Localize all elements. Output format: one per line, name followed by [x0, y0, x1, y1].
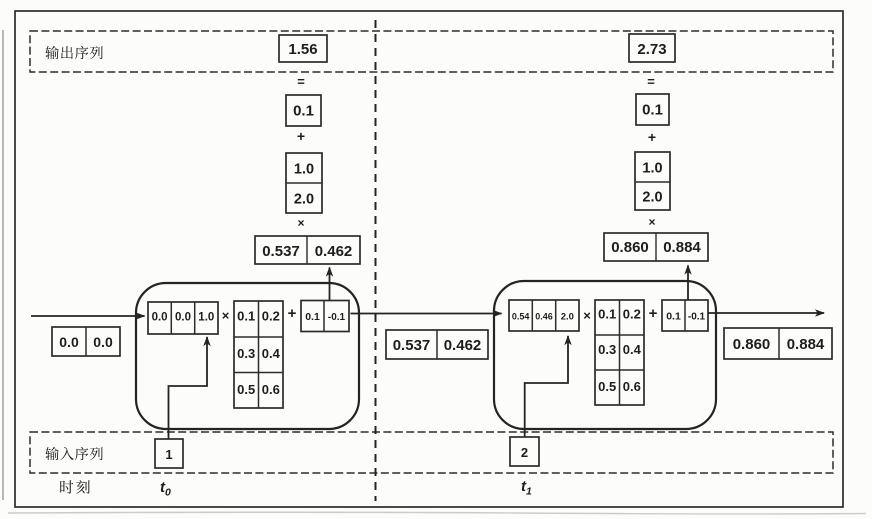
svg-text:0.2: 0.2: [262, 309, 280, 324]
svg-text:×: ×: [583, 308, 591, 323]
svg-text:0.0: 0.0: [59, 334, 79, 350]
svg-text:0.6: 0.6: [623, 379, 641, 394]
svg-text:×: ×: [222, 308, 230, 323]
svg-text:0.1: 0.1: [237, 309, 255, 324]
svg-text:0.3: 0.3: [237, 346, 255, 361]
svg-text:0.1: 0.1: [666, 311, 681, 323]
svg-text:0.1: 0.1: [642, 102, 663, 119]
svg-text:1.0: 1.0: [642, 161, 662, 177]
svg-text:1.0: 1.0: [294, 162, 314, 178]
svg-text:0.4: 0.4: [262, 346, 281, 361]
svg-text:0.1: 0.1: [305, 311, 320, 323]
svg-text:=: =: [647, 74, 655, 89]
svg-text:0.5: 0.5: [598, 379, 616, 394]
svg-text:+: +: [649, 305, 658, 322]
svg-text:0.6: 0.6: [262, 382, 280, 397]
svg-text:0.0: 0.0: [152, 312, 168, 324]
svg-text:2.0: 2.0: [294, 192, 314, 208]
svg-text:0.884: 0.884: [663, 239, 701, 256]
svg-text:=: =: [297, 74, 305, 89]
svg-text:+: +: [297, 128, 305, 144]
svg-text:2: 2: [521, 445, 528, 460]
svg-text:1.0: 1.0: [198, 312, 214, 324]
svg-text:0.884: 0.884: [787, 336, 825, 353]
svg-text:2.73: 2.73: [637, 41, 666, 58]
svg-text:0.537: 0.537: [393, 337, 431, 354]
svg-text:0.2: 0.2: [623, 307, 641, 322]
svg-text:0.1: 0.1: [293, 103, 314, 120]
svg-text:0.1: 0.1: [598, 307, 616, 322]
svg-text:0.0: 0.0: [93, 334, 113, 350]
svg-text:0.3: 0.3: [598, 342, 616, 357]
svg-text:×: ×: [648, 215, 655, 229]
svg-text:-0.1: -0.1: [328, 312, 346, 323]
svg-text:0.462: 0.462: [315, 243, 353, 260]
svg-text:0.860: 0.860: [611, 239, 649, 256]
svg-text:2.0: 2.0: [561, 312, 574, 323]
svg-text:0.46: 0.46: [535, 312, 553, 322]
svg-text:1: 1: [165, 447, 172, 462]
svg-text:0.4: 0.4: [623, 342, 642, 357]
svg-text:×: ×: [297, 216, 304, 230]
svg-text:0.462: 0.462: [444, 337, 482, 354]
svg-text:0.5: 0.5: [237, 382, 255, 397]
svg-text:0.537: 0.537: [262, 243, 300, 260]
svg-text:0.860: 0.860: [733, 336, 771, 353]
svg-text:-0.1: -0.1: [688, 312, 706, 323]
svg-text:0.54: 0.54: [512, 312, 530, 322]
svg-text:+: +: [288, 305, 297, 322]
svg-text:+: +: [648, 129, 656, 145]
svg-text:0.0: 0.0: [175, 312, 191, 324]
svg-text:1.56: 1.56: [288, 41, 317, 58]
svg-text:2.0: 2.0: [642, 190, 662, 206]
